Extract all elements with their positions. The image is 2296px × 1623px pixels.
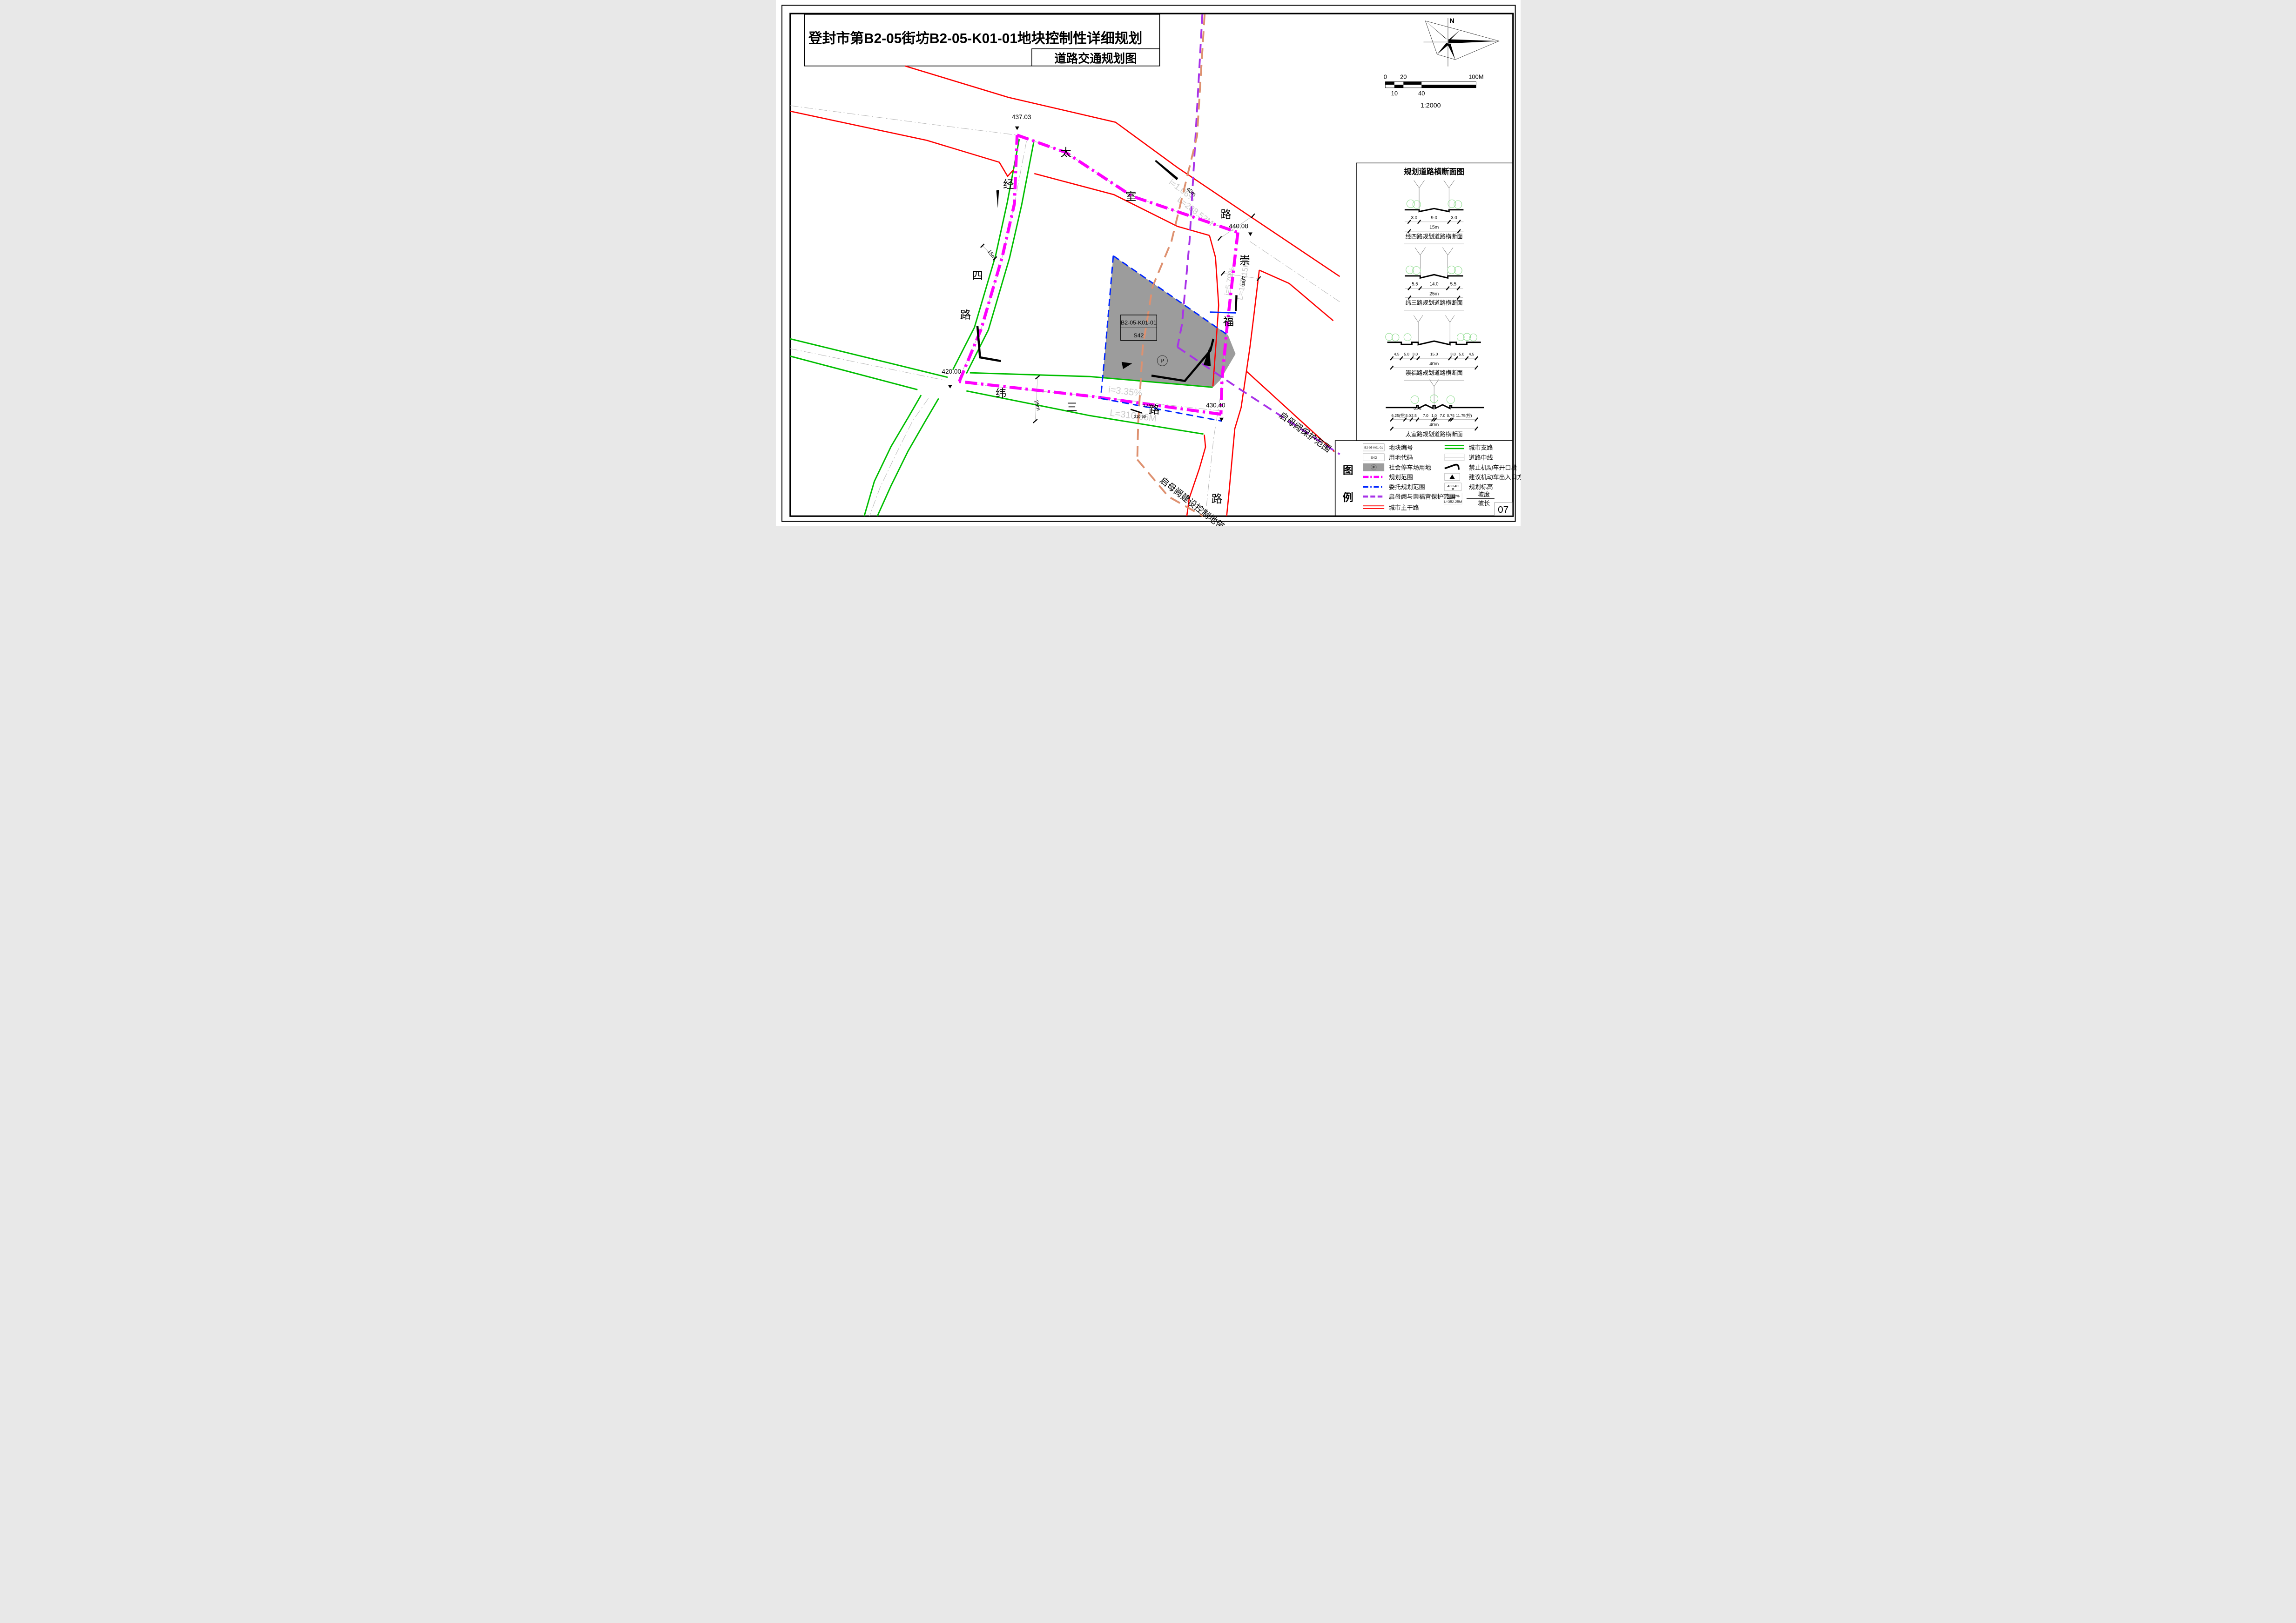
legend-centerline-label: 道路中线 bbox=[1468, 454, 1493, 461]
s3-tree bbox=[1385, 333, 1393, 341]
section-jingsi: 3.0 9.0 3.0 15m 经四路规划道路横断面 bbox=[1404, 181, 1464, 244]
legend-plot-code-sym: B2-05-K01-01 bbox=[1364, 446, 1383, 449]
s2-total: 25m bbox=[1429, 291, 1439, 296]
taishi-char-3: 路 bbox=[1220, 208, 1231, 221]
scalebar-seg bbox=[1385, 81, 1394, 84]
weisan-char-3: 路 bbox=[1149, 404, 1159, 416]
slope-arrow-taishi bbox=[1155, 160, 1178, 180]
width-label-weisan: 25m bbox=[1033, 400, 1041, 411]
legend-entrance-label: 建议机动车出入口方向 bbox=[1468, 474, 1520, 481]
drawing-subtitle: 道路交通规划图 bbox=[1054, 52, 1137, 66]
s3-road-surface bbox=[1387, 341, 1481, 345]
s1-dim: 3.0 bbox=[1411, 215, 1417, 221]
legend-slope-grade: i=1.08% bbox=[1446, 494, 1459, 498]
scalebar-seg bbox=[1394, 85, 1403, 88]
s1-dim: 3.0 bbox=[1451, 215, 1457, 221]
s1-caption: 经四路规划道路横断面 bbox=[1405, 233, 1462, 240]
s3-total: 40m bbox=[1429, 362, 1439, 367]
compass-east-point bbox=[1448, 39, 1499, 43]
s3-tree bbox=[1392, 334, 1399, 341]
s4-poles bbox=[1429, 380, 1438, 406]
chongfu-east-edge bbox=[1226, 270, 1259, 516]
jingsi-char-3: 路 bbox=[960, 309, 970, 321]
s3-tree bbox=[1404, 334, 1411, 341]
s1-tree bbox=[1413, 201, 1421, 208]
s1-total: 15m bbox=[1429, 225, 1439, 230]
section-chongfu: 4.5 5.0 3.0 15.0 3.0 5.0 4.5 40m 崇福路规划道路… bbox=[1385, 315, 1481, 380]
elevation-ne: 440.08 bbox=[1229, 222, 1248, 229]
scale-20: 20 bbox=[1400, 73, 1407, 80]
elevation-nw-marker bbox=[1015, 127, 1019, 130]
chongfu-char-3: 路 bbox=[1211, 493, 1222, 505]
entrusted-scope-connector bbox=[1210, 312, 1236, 313]
legend-no-open-symbol bbox=[1444, 465, 1458, 470]
s4-tree bbox=[1447, 396, 1454, 403]
plan-sheet: 登封市第B2-05街坊B2-05-K01-01地块控制性详细规划 道路交通规划图… bbox=[776, 0, 1521, 526]
elevation-sw: 420.00 bbox=[942, 368, 961, 375]
s4-dim: 1.0 bbox=[1431, 413, 1437, 418]
scale-10: 10 bbox=[1391, 90, 1397, 97]
s4-dim: 7.0 bbox=[1423, 413, 1428, 418]
drawing-title: 登封市第B2-05街坊B2-05-K01-01地块控制性详细规划 bbox=[808, 30, 1142, 46]
parking-symbol-p: P bbox=[1160, 358, 1164, 364]
weisan-char-1: 纬 bbox=[995, 387, 1006, 399]
legend-slope-arrow bbox=[1447, 498, 1455, 498]
s2-poles bbox=[1414, 248, 1453, 276]
elevation-se: 430.40 bbox=[1205, 402, 1225, 409]
legend-branch-road-label: 城市支路 bbox=[1468, 444, 1493, 451]
south-road-west-edge bbox=[864, 395, 921, 516]
s3-dim: 4.5 bbox=[1394, 352, 1399, 356]
scale-ratio: 1:2000 bbox=[1420, 102, 1441, 109]
width-dim-weisan bbox=[1035, 377, 1037, 421]
plot-code: B2-05-K01-01 bbox=[1121, 319, 1157, 326]
s4-dim-raised: 0.75 bbox=[1414, 406, 1421, 411]
scale-40: 40 bbox=[1418, 90, 1425, 97]
jingsi-char-1: 经 bbox=[1003, 178, 1014, 190]
legend-slope-num: 坡度 bbox=[1478, 491, 1490, 498]
s3-tree bbox=[1469, 334, 1477, 341]
plot-use-code: S42 bbox=[1133, 332, 1144, 339]
s2-dim: 5.5 bbox=[1412, 282, 1418, 287]
legend-scope-label: 规划范围 bbox=[1388, 474, 1413, 481]
legend-protect-label: 启母阙与崇福宫保护范围 bbox=[1388, 493, 1455, 500]
s4-dim: 11.75(控) bbox=[1456, 413, 1472, 418]
planning-scope-west bbox=[959, 135, 1017, 382]
road-traffic-plan-map: 登封市第B2-05街坊B2-05-K01-01地块控制性详细规划 道路交通规划图… bbox=[776, 0, 1521, 526]
construction-control-line-vertical bbox=[1137, 14, 1205, 460]
elevation-ne-marker bbox=[1248, 232, 1252, 236]
centerline-south-road bbox=[869, 398, 928, 516]
legend-no-open-label: 禁止机动车开口段 bbox=[1468, 464, 1517, 471]
legend-entrance-arrow bbox=[1449, 475, 1455, 479]
legend-plot-code-label: 地块编号 bbox=[1388, 444, 1413, 451]
centerline-weisan-east bbox=[970, 384, 1221, 411]
s4-road-surface bbox=[1386, 405, 1484, 409]
legend-main-road-label: 城市主干路 bbox=[1388, 504, 1419, 511]
centerline-weisan-west bbox=[790, 349, 944, 380]
s4-dim: 2.5 bbox=[1411, 413, 1417, 418]
legend-parking-p: P bbox=[1373, 466, 1375, 469]
legend-parking-label: 社会停车场用地 bbox=[1388, 464, 1431, 471]
weisan-south-edge-west bbox=[790, 356, 917, 389]
scalebar-seg bbox=[1403, 81, 1421, 84]
slope-arrow-jingsi bbox=[996, 190, 999, 208]
legend-use-code-sym: S42 bbox=[1370, 456, 1377, 460]
s3-dim: 5.0 bbox=[1404, 352, 1409, 356]
legend-elevation-sym: 430.40 bbox=[1447, 484, 1458, 488]
protection-scope-label: 启母阙保护范围 bbox=[1277, 410, 1333, 454]
scalebar-seg bbox=[1421, 85, 1476, 88]
slope-grade-weisan-ghost: i=3.35% bbox=[1107, 384, 1142, 399]
slope-length-weisan: 310.60 bbox=[1134, 414, 1146, 419]
legend-header-2: 例 bbox=[1342, 491, 1353, 503]
map-area: i=1.06% L=288.52M i=3.35% L=310.66M i=5.… bbox=[790, 14, 1340, 526]
legend-elevation-marker bbox=[1452, 489, 1454, 490]
north-arrow: N bbox=[1423, 17, 1499, 66]
scale-bar: 0 20 100M 10 40 1:2000 bbox=[1383, 73, 1483, 109]
legend-entrust-label: 委托规划范围 bbox=[1388, 483, 1425, 490]
s2-dim: 14.0 bbox=[1429, 282, 1439, 287]
chongfu-char-1: 崇 bbox=[1239, 255, 1250, 267]
scale-0: 0 bbox=[1383, 73, 1387, 80]
s1-dim: 9.0 bbox=[1431, 215, 1437, 221]
elevation-sw-marker bbox=[948, 385, 952, 389]
s4-dim: 3.0 bbox=[1405, 413, 1411, 418]
s4-dim: 0.75 bbox=[1447, 413, 1454, 418]
s3-caption: 崇福路规划道路横断面 bbox=[1405, 369, 1462, 376]
s2-road-surface bbox=[1405, 275, 1463, 278]
s2-caption: 纬三路规划道路横断面 bbox=[1405, 299, 1462, 306]
s1-road-surface bbox=[1404, 208, 1463, 211]
width-label-jingsi: 15m bbox=[986, 248, 997, 261]
chongfu-char-2: 福 bbox=[1223, 315, 1233, 328]
taishi-north-edge bbox=[905, 66, 1340, 276]
s4-dim: 7.0 bbox=[1440, 413, 1445, 418]
width-label-chongfu: 40m bbox=[1239, 276, 1246, 287]
north-label: N bbox=[1449, 17, 1454, 25]
taishi-char-1: 太 bbox=[1060, 147, 1071, 159]
s4-dim: 6.25(控) bbox=[1391, 413, 1406, 418]
compass-ne-point bbox=[1448, 30, 1459, 40]
cross-sections-title: 规划道路横断面图 bbox=[1404, 168, 1464, 176]
s3-dim: 15.0 bbox=[1430, 352, 1438, 356]
legend-panel: 图 例 B2-05-K01-01 地块编号 S42 用地代码 P 社会停车场用地… bbox=[1335, 441, 1520, 516]
page-number: 07 bbox=[1498, 504, 1508, 515]
legend-slope-den: 坡长 bbox=[1478, 500, 1490, 507]
s1-tree bbox=[1454, 201, 1461, 208]
taishi-south-edge-east bbox=[1259, 270, 1333, 321]
s3-dim: 3.0 bbox=[1450, 352, 1456, 356]
s3-dim: 3.0 bbox=[1412, 352, 1418, 356]
legend-use-code-label: 用地代码 bbox=[1388, 454, 1413, 461]
cross-sections-panel: 规划道路横断面图 3.0 9.0 3.0 15m 经四路规划道路横断面 bbox=[1356, 163, 1513, 441]
s3-dim: 4.5 bbox=[1468, 352, 1474, 356]
jingsi-char-2: 四 bbox=[972, 269, 983, 282]
title-block: 登封市第B2-05街坊B2-05-K01-01地块控制性详细规划 道路交通规划图 bbox=[804, 14, 1159, 66]
s4-caption: 太室路规划道路横断面 bbox=[1405, 430, 1462, 437]
taishi-south-edge-west bbox=[790, 111, 1013, 176]
taishi-char-2: 室 bbox=[1125, 190, 1136, 202]
protection-scope-line-vertical bbox=[1177, 14, 1202, 347]
section-weisan: 5.5 14.0 5.5 25m 纬三路规划道路横断面 bbox=[1404, 248, 1464, 310]
s3-poles bbox=[1414, 315, 1454, 342]
s3-dim: 5.0 bbox=[1459, 352, 1464, 356]
legend-slope-length: L=352.25M bbox=[1444, 500, 1462, 504]
legend-elevation-label: 规划标高 bbox=[1468, 483, 1493, 490]
weisan-char-2: 三 bbox=[1066, 401, 1077, 413]
slope-arrow-chongfu bbox=[1235, 295, 1237, 311]
elevation-nw: 437.03 bbox=[1011, 114, 1031, 121]
s4-tree bbox=[1411, 396, 1419, 403]
s2-dim: 5.5 bbox=[1450, 282, 1456, 287]
weisan-north-edge-west bbox=[790, 339, 947, 377]
section-taishi: 0.75 6.25(控) 3.0 2.5 7.0 1.0 7.0 0.75 11… bbox=[1386, 380, 1484, 441]
s4-total: 40m bbox=[1429, 423, 1439, 428]
legend-header-1: 图 bbox=[1342, 464, 1353, 476]
scale-100m: 100M bbox=[1468, 73, 1483, 80]
